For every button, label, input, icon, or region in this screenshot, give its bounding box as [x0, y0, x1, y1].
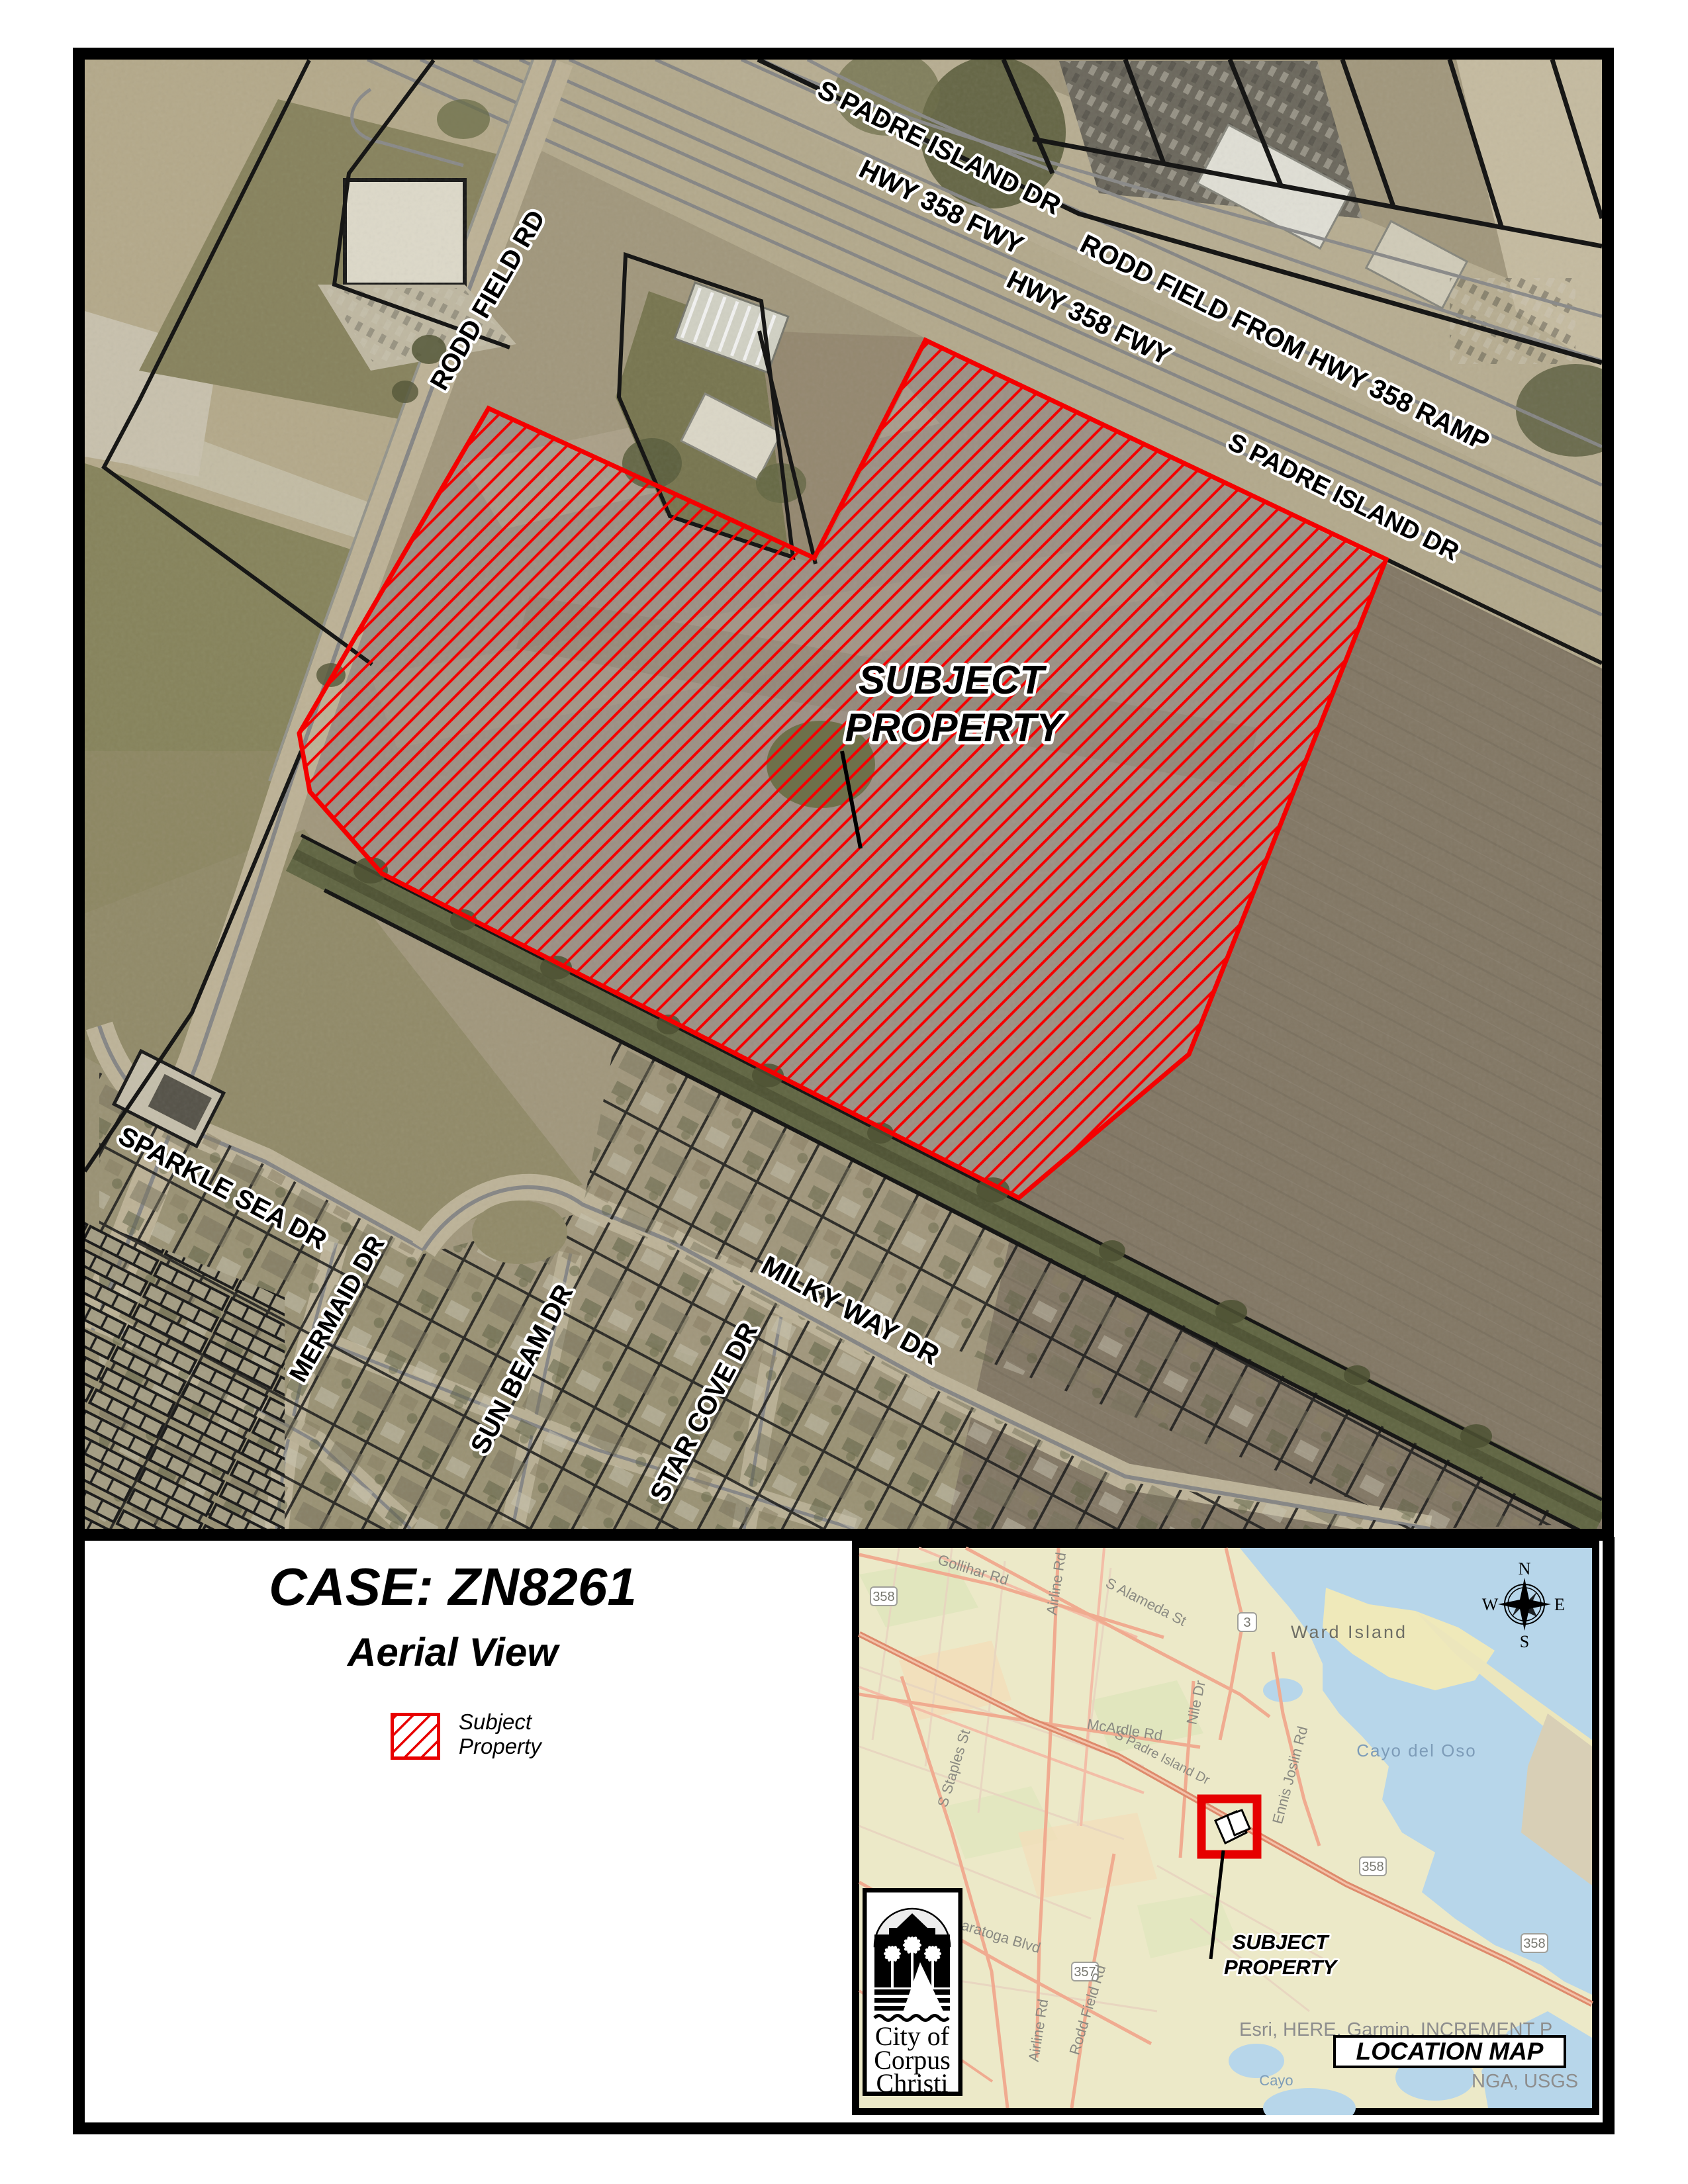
svg-text:Cayo del Oso: Cayo del Oso	[1356, 1741, 1477, 1760]
svg-text:LOCATION MAP: LOCATION MAP	[1356, 2038, 1544, 2065]
svg-text:358: 358	[872, 1590, 894, 1604]
svg-text:358: 358	[1523, 1936, 1545, 1951]
svg-text:Christi: Christi	[876, 2068, 949, 2096]
svg-text:S: S	[1520, 1632, 1529, 1651]
svg-text:358: 358	[1362, 1860, 1383, 1874]
svg-text:PROPERTY: PROPERTY	[1224, 1956, 1338, 1979]
svg-text:E: E	[1554, 1595, 1565, 1614]
svg-text:NGA, USGS: NGA, USGS	[1472, 2071, 1578, 2092]
svg-text:W: W	[1482, 1595, 1499, 1614]
svg-text:N: N	[1519, 1559, 1531, 1578]
svg-text:SUBJECT: SUBJECT	[1233, 1931, 1331, 1954]
svg-text:3: 3	[1243, 1615, 1250, 1630]
svg-text:Ward Island: Ward Island	[1291, 1622, 1407, 1642]
svg-text:PROPERTY: PROPERTY	[845, 705, 1066, 750]
svg-text:SUBJECT: SUBJECT	[859, 658, 1047, 702]
svg-text:Cayo: Cayo	[1259, 2072, 1293, 2089]
